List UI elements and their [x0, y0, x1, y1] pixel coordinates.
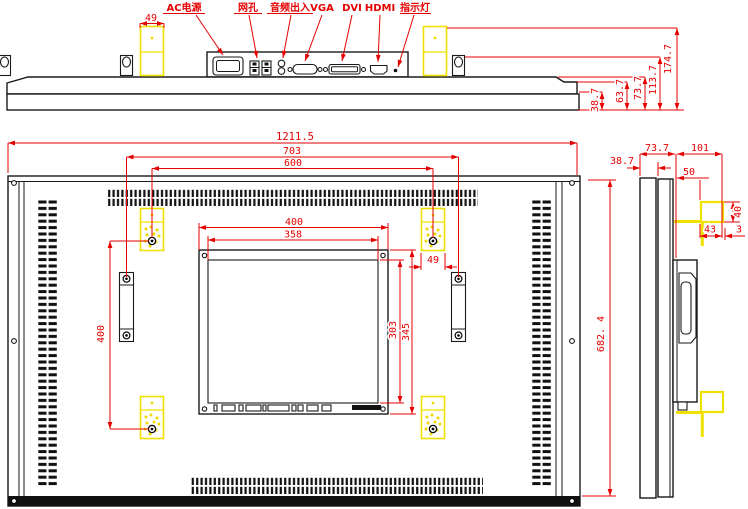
top-view: AC电源 网孔 音频出入 VGA DVI HDMI 指示灯 49 — [0, 1, 684, 112]
handle-left — [120, 273, 134, 342]
dim-back-depth: 101 — [691, 143, 709, 154]
top-view-bezel-bar — [7, 77, 577, 94]
dim-total-height: 682. 4 — [582, 180, 616, 496]
handle-mount-right — [453, 56, 465, 76]
dim-hook-lip: 3 — [736, 225, 742, 236]
bottom-edge-bar — [8, 496, 580, 506]
dim-h3: 73.7 — [633, 76, 644, 100]
side-mid-panel — [658, 179, 673, 497]
vent-strip-bottom — [190, 477, 483, 495]
screw — [12, 339, 17, 344]
svg-text:600: 600 — [284, 158, 302, 169]
svg-text:49: 49 — [427, 255, 439, 266]
side-dims: 73.7 101 38.7 50 40 43 3 — [610, 143, 745, 258]
led-indicator-icon — [394, 69, 398, 73]
handle-mount-left — [121, 56, 133, 76]
label-indicator: 指示灯 — [400, 1, 430, 14]
dim-h4: 113.7 — [648, 65, 659, 95]
edge-mount — [0, 56, 11, 76]
dim-box-depth: 50 — [683, 167, 695, 178]
dim-front-depth: 73.7 — [645, 143, 669, 154]
hdmi-port-icon — [371, 66, 388, 75]
dim-hook-height: 40 — [733, 206, 744, 218]
dim-hook-width: 43 — [704, 225, 716, 236]
label-hdmi: HDMI — [365, 3, 395, 14]
vent-strip-top — [107, 189, 478, 207]
svg-text:400: 400 — [285, 217, 303, 228]
svg-text:345: 345 — [401, 323, 412, 341]
dim-panel-thickness: 38.7 — [610, 156, 634, 167]
svg-text:303: 303 — [388, 321, 399, 339]
svg-text:49: 49 — [145, 13, 157, 24]
center-plate — [199, 250, 388, 414]
handle-right — [452, 273, 466, 342]
screw — [570, 339, 575, 344]
label-vga: VGA — [310, 3, 334, 14]
side-view: 73.7 101 38.7 50 40 43 3 — [610, 143, 745, 498]
dim-h1: 38.7 — [590, 88, 601, 112]
mount-bracket-top-left — [141, 27, 164, 76]
dim-h2: 63.7 — [615, 79, 626, 103]
label-ac-power: AC电源 — [166, 1, 201, 14]
svg-text:358: 358 — [284, 230, 302, 241]
power-inlet-icon — [213, 57, 243, 75]
dvi-port-icon — [324, 65, 366, 75]
label-dvi: DVI — [342, 3, 362, 14]
label-audio: 音频出入 — [270, 1, 310, 14]
front-view: 1211.5 703 600 400 358 — [8, 131, 616, 506]
top-view-body-bar — [7, 94, 579, 110]
screw — [570, 181, 575, 186]
dim-h5: 174.7 — [663, 44, 674, 74]
svg-text:400: 400 — [96, 325, 107, 343]
label-lan: 网孔 — [238, 1, 258, 14]
vent-column-left — [38, 199, 57, 487]
svg-text:682. 4: 682. 4 — [596, 316, 607, 352]
vent-column-right — [532, 199, 551, 487]
side-front-panel — [640, 178, 656, 498]
screw — [570, 499, 575, 504]
side-rear-handle — [679, 273, 696, 343]
screw — [12, 499, 17, 504]
svg-text:703: 703 — [283, 146, 301, 157]
svg-text:1211.5: 1211.5 — [276, 131, 314, 143]
screw — [12, 181, 17, 186]
technical-drawing: AC电源 网孔 音频出入 VGA DVI HDMI 指示灯 49 — [0, 0, 748, 509]
hook-notch — [678, 402, 687, 410]
mount-bracket-top-right — [424, 27, 447, 76]
